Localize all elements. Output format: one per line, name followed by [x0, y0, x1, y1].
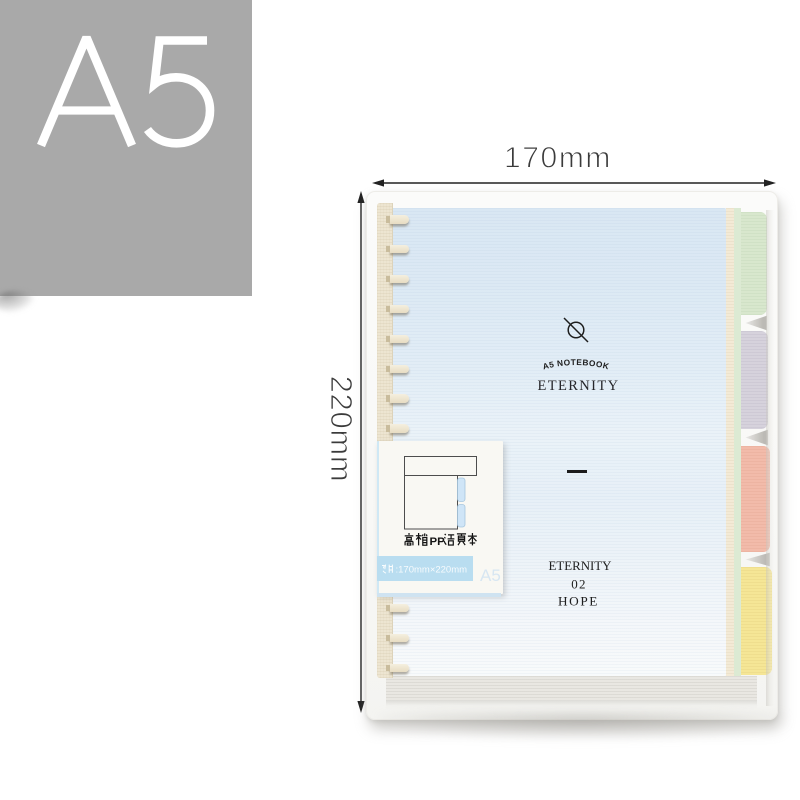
svg-text::170mm×220mm: :170mm×220mm	[396, 565, 468, 576]
svg-text:02: 02	[571, 577, 586, 592]
svg-text:A5 NOTEBOOK: A5 NOTEBOOK	[542, 357, 611, 371]
svg-text:ETERNITY: ETERNITY	[537, 378, 619, 394]
svg-text:220mm: 220mm	[325, 376, 357, 483]
svg-text:ETERNITY: ETERNITY	[549, 559, 612, 573]
svg-text:PP: PP	[430, 536, 446, 547]
svg-text:HOPE: HOPE	[558, 594, 599, 608]
svg-text:170mm: 170mm	[504, 142, 612, 173]
